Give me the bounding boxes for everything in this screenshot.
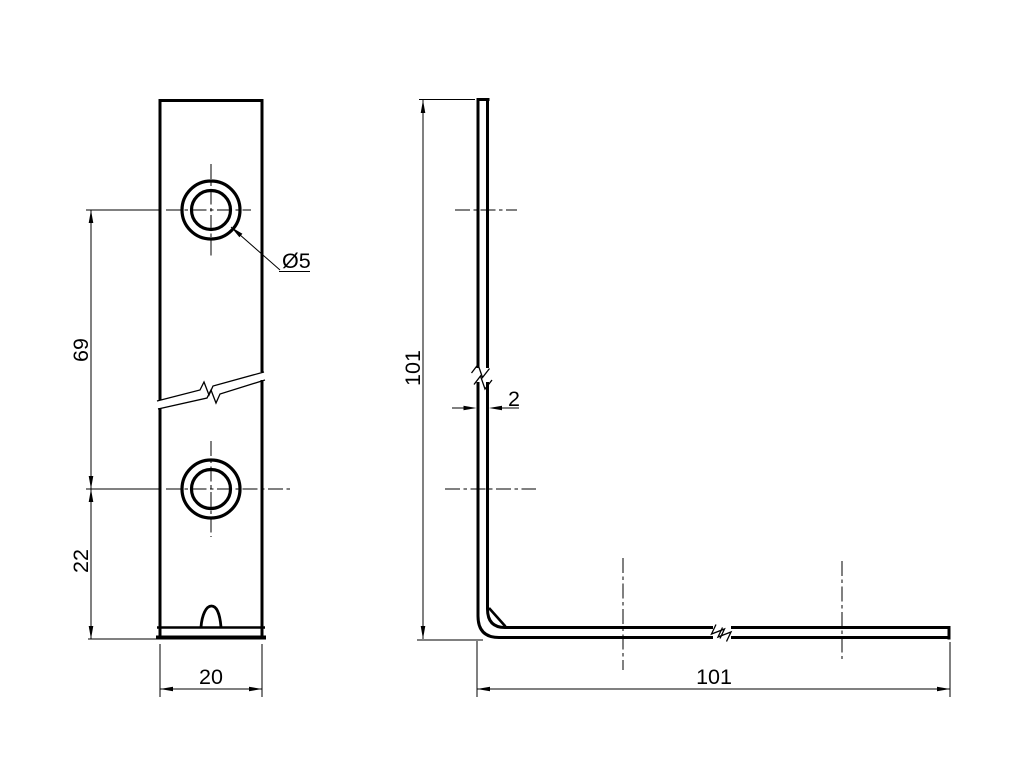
front-bottom-edges [156, 606, 266, 638]
dim-69-22 [86, 210, 159, 639]
bent-profile [477, 98, 950, 640]
bottom-tab-bump [201, 606, 221, 627]
dim-edge-to-hole-label: 22 [69, 549, 93, 573]
dim-thickness-label: 2 [508, 387, 520, 411]
drawing-canvas: 69 22 20 Ø5 101 2 101 [0, 0, 1024, 768]
dim-height-101 [417, 100, 483, 641]
plate-break-lines [157, 372, 265, 409]
side-centerlines [445, 210, 842, 670]
dimension-labels: 69 22 20 Ø5 101 2 101 [69, 249, 732, 689]
hole-diameter-label: Ø5 [282, 249, 311, 273]
front-view [156, 99, 293, 639]
dim-height-label: 101 [401, 350, 425, 386]
side-view [445, 98, 949, 670]
dim-length-label: 101 [696, 665, 732, 689]
dim-width-label: 20 [199, 665, 223, 689]
dim-hole-spacing-label: 69 [69, 338, 93, 362]
